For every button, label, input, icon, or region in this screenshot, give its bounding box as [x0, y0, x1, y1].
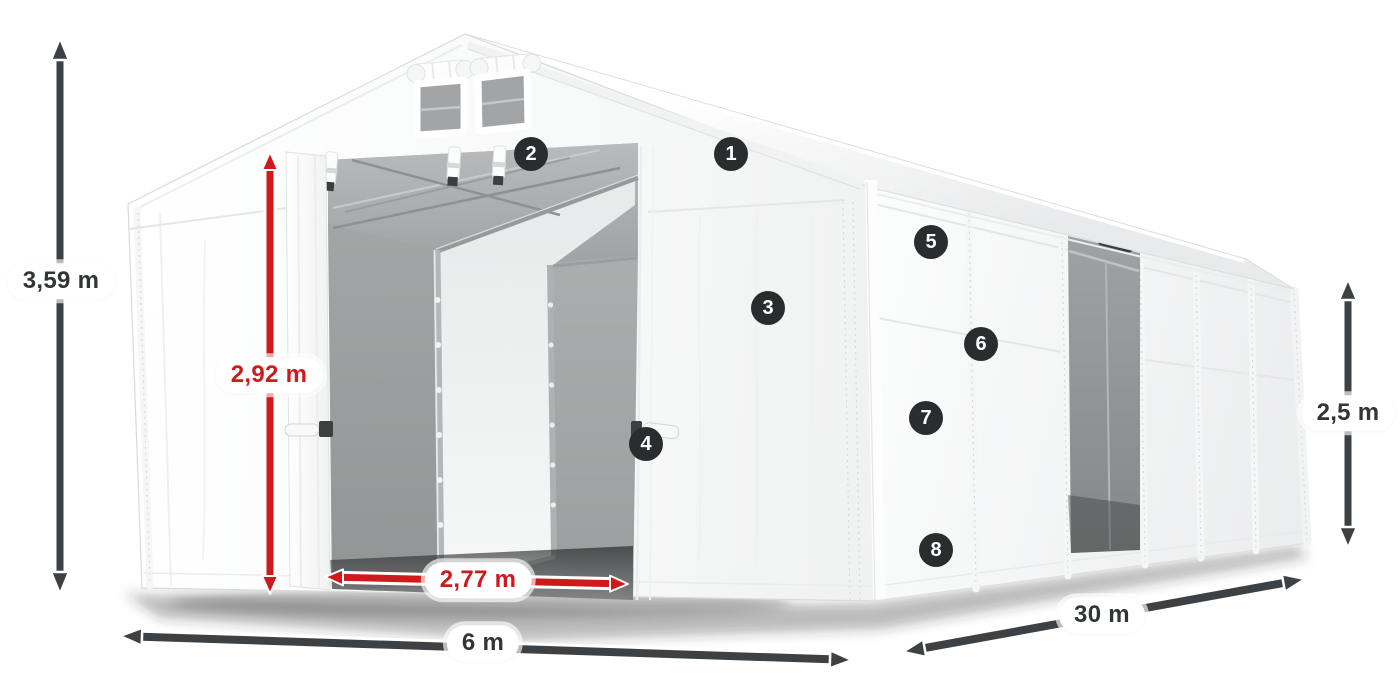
tent-width-label: 6 m — [447, 625, 519, 661]
tent-illustration — [0, 0, 1400, 700]
hotspot-2[interactable]: 2 — [514, 137, 548, 171]
hotspot-7[interactable]: 7 — [909, 401, 943, 435]
hotspot-8[interactable]: 8 — [919, 533, 953, 567]
hotspot-3[interactable]: 3 — [751, 291, 785, 325]
ridge-height-arrow — [51, 38, 69, 594]
hotspot-6[interactable]: 6 — [964, 327, 998, 361]
side-door-opening — [1068, 234, 1140, 553]
ridge-height-label: 3,59 m — [8, 263, 115, 299]
side-height-label: 2,5 m — [1302, 395, 1395, 431]
tent-length-label: 30 m — [1059, 597, 1145, 633]
front-door-opening — [322, 143, 638, 600]
door-handle-left — [285, 424, 319, 436]
hotspot-5[interactable]: 5 — [914, 225, 948, 259]
hotspot-1[interactable]: 1 — [714, 137, 748, 171]
door-height-label: 2,92 m — [216, 357, 323, 393]
hotspot-4[interactable]: 4 — [629, 427, 663, 461]
door-width-label: 2,77 m — [425, 562, 532, 598]
tent-product-diagram: 3,59 m 2,92 m 2,77 m 6 m 30 m 2,5 m 1 2 … — [0, 0, 1400, 700]
